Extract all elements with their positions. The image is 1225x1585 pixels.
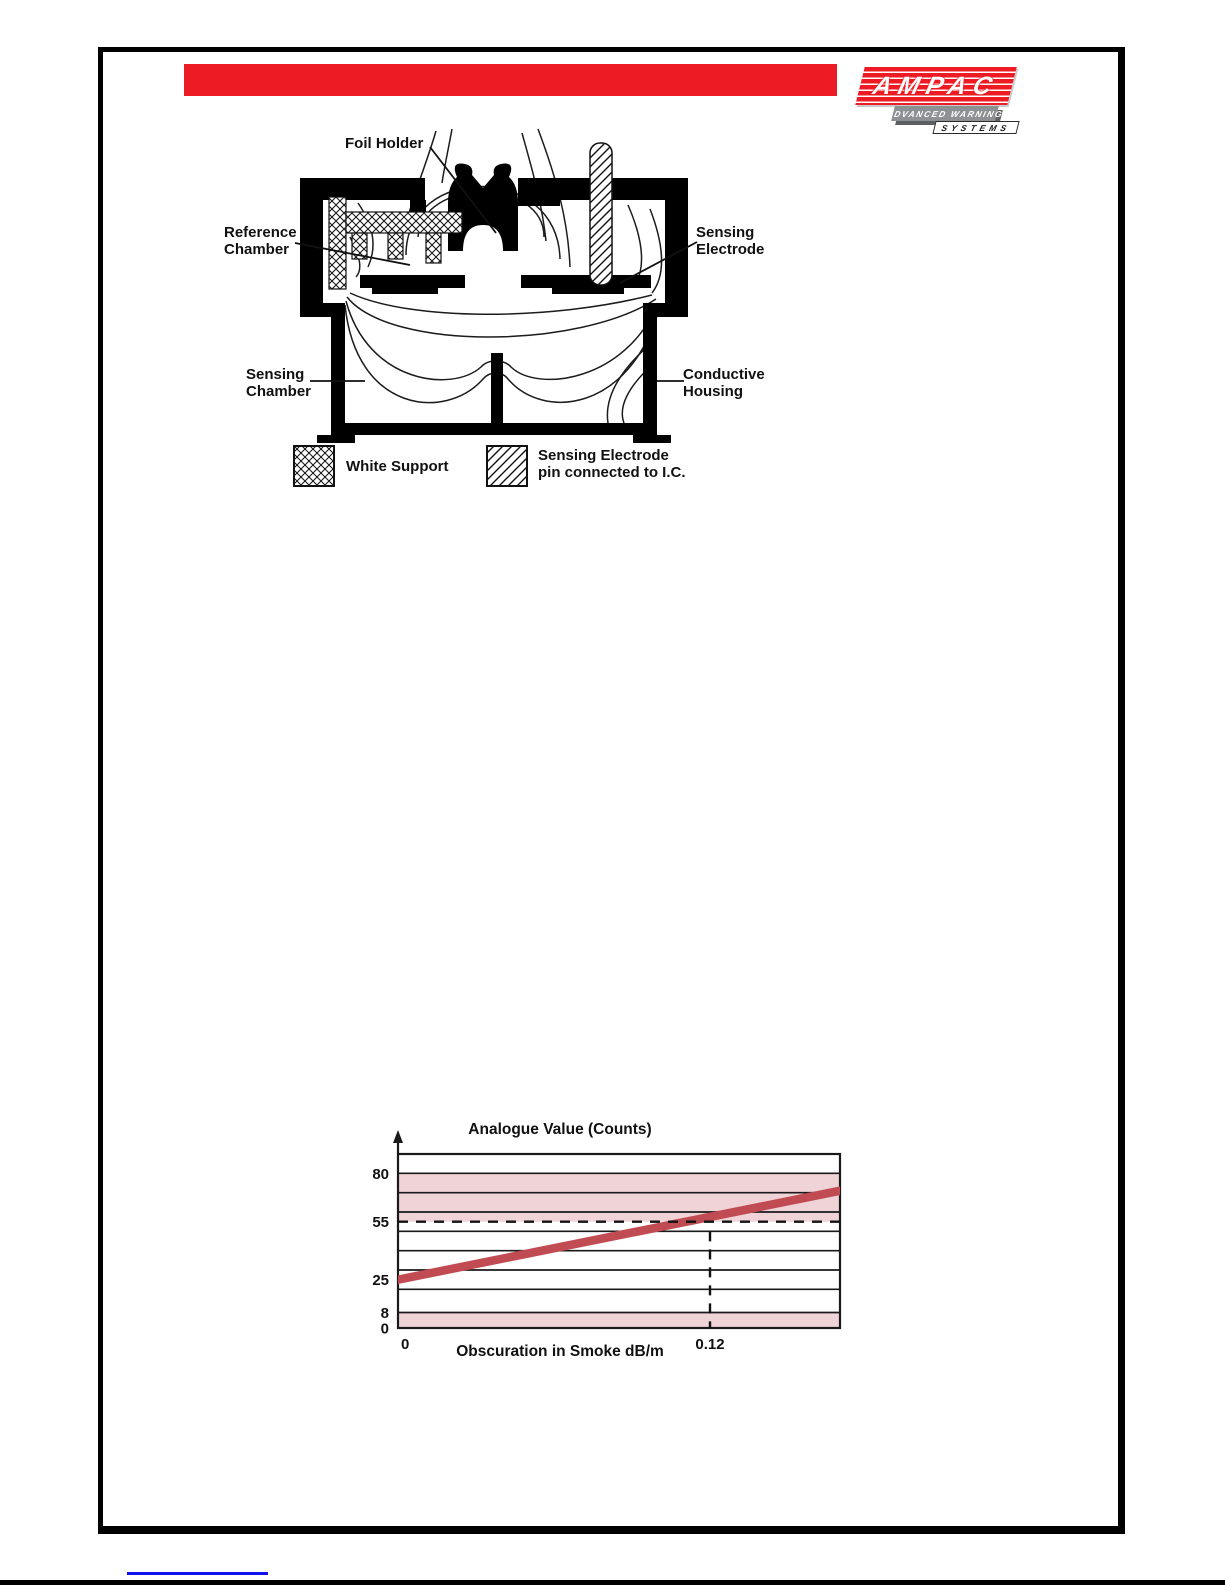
logo-brand-text: AMPAC — [870, 72, 1002, 101]
sensing-chamber-label: Sensing Chamber — [246, 366, 311, 400]
legend-swatch-sensing-pin — [486, 445, 528, 487]
legend-swatch-white-support — [293, 445, 335, 487]
y-tick-label: 25 — [372, 1272, 389, 1289]
legend-label-white-support: White Support — [346, 458, 448, 475]
logo-tagline-plate: ADVANCED WARNING — [891, 106, 999, 121]
analogue-chart-svg: 8055258000.12 — [360, 1115, 860, 1365]
bottom-rule — [0, 1580, 1225, 1585]
chart-x-axis-label: Obscuration in Smoke dB/m — [420, 1343, 700, 1361]
y-tick-label: 8 — [381, 1305, 389, 1322]
foil-holder-label: Foil Holder — [345, 135, 423, 152]
header-red-bar — [184, 64, 837, 96]
logo-tagline-text: ADVANCED WARNING — [885, 109, 1004, 119]
analogue-value-chart: Analogue Value (Counts) 8055258000.12 Ob… — [360, 1115, 860, 1377]
chart-band — [398, 1173, 840, 1221]
y-axis-arrow-head — [393, 1130, 403, 1143]
sensing-electrode-label: Sensing Electrode — [696, 224, 764, 258]
footer-link[interactable] — [127, 1572, 268, 1575]
chart-band — [398, 1313, 840, 1328]
y-tick-label: 0 — [381, 1321, 389, 1338]
logo-subline-plate: SYSTEMS — [932, 121, 1019, 134]
sensing-electrode-pin — [590, 143, 612, 285]
y-tick-label: 80 — [372, 1166, 389, 1183]
conductive-housing-label: Conductive Housing — [683, 366, 765, 400]
reference-chamber-label: Reference Chamber — [224, 224, 297, 258]
x-tick-label: 0 — [401, 1336, 409, 1353]
legend-label-sensing-pin: Sensing Electrode pin connected to I.C. — [538, 447, 686, 481]
y-tick-label: 55 — [372, 1214, 389, 1231]
logo-subline-text: SYSTEMS — [940, 123, 1011, 133]
foil-holder-shape — [448, 164, 518, 251]
chart-title: Analogue Value (Counts) — [420, 1121, 700, 1139]
logo-brand-plate: AMPAC — [855, 67, 1016, 105]
